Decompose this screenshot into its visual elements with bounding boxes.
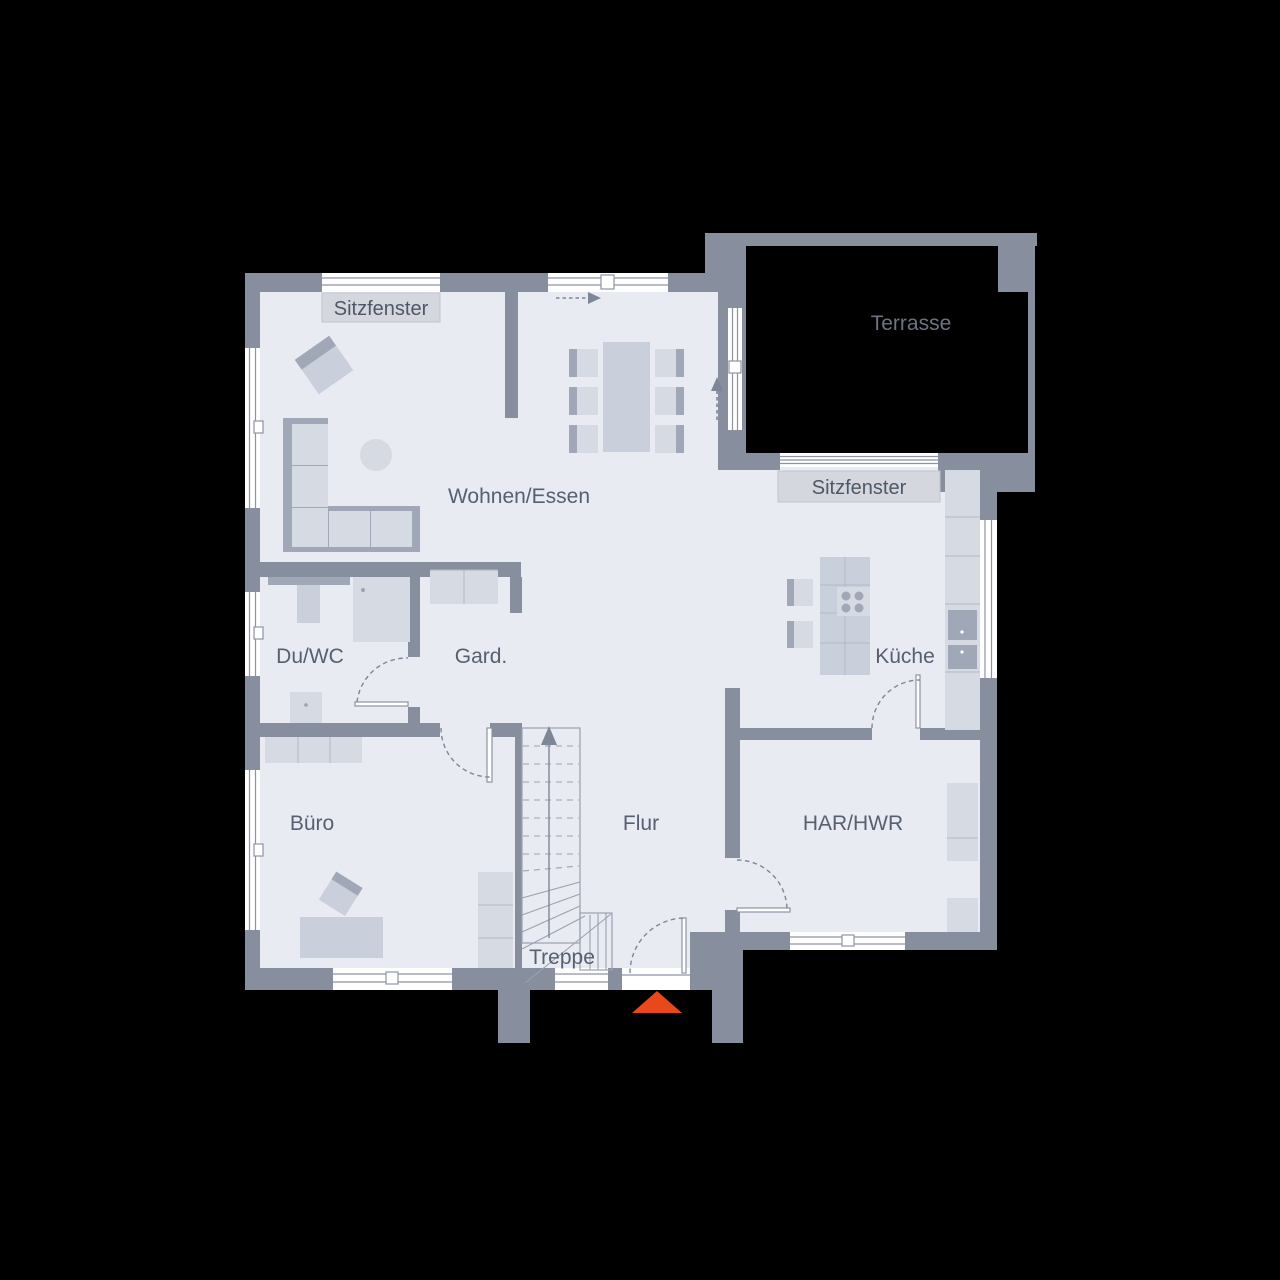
du-wc-label: Du/WC bbox=[276, 645, 344, 668]
dining-chair bbox=[569, 349, 598, 377]
window-handle bbox=[254, 627, 263, 639]
porch-right-block bbox=[690, 932, 743, 990]
har-hwr-label: HAR/HWR bbox=[803, 812, 903, 835]
dining-chair bbox=[569, 425, 598, 453]
treppe-label: Treppe bbox=[529, 946, 595, 969]
window-handle bbox=[729, 361, 741, 373]
window-handle bbox=[254, 844, 263, 856]
coffee-table bbox=[360, 439, 392, 471]
kitchen-island bbox=[820, 557, 870, 675]
har-cabinets bbox=[947, 783, 978, 932]
window-har-bottom bbox=[790, 932, 905, 950]
appliance bbox=[948, 645, 977, 669]
desk bbox=[300, 917, 383, 958]
terrace-topright-block bbox=[998, 240, 1035, 292]
window-buero-bottom bbox=[333, 968, 452, 990]
shower bbox=[353, 577, 410, 642]
stair-left-wall bbox=[515, 723, 522, 968]
porch-left-stub bbox=[498, 990, 530, 1043]
porch-right-stub bbox=[712, 990, 743, 1043]
dining-table bbox=[603, 342, 650, 452]
sitzfenster-right-label: Sitzfenster bbox=[812, 477, 907, 499]
terrasse-surface bbox=[746, 246, 1028, 453]
cooktop bbox=[837, 587, 870, 616]
window-top-sliding bbox=[548, 273, 668, 292]
window-treppe-bottom bbox=[555, 968, 608, 990]
wohnen-essen-label: Wohnen/Essen bbox=[448, 485, 590, 508]
dining-chair bbox=[655, 387, 684, 415]
window-handle bbox=[386, 972, 398, 984]
kueche-label: Küche bbox=[875, 645, 935, 668]
flur-har-wall bbox=[725, 688, 740, 858]
buero-cabinets bbox=[265, 737, 362, 763]
gard-right-stub bbox=[510, 577, 522, 613]
entrance-marker-icon bbox=[632, 991, 682, 1013]
terrace-right-wall bbox=[1028, 292, 1035, 453]
sitzfenster-top-label: Sitzfenster bbox=[334, 298, 429, 320]
buero-top-wall bbox=[245, 723, 440, 737]
kitchen-counter bbox=[945, 470, 980, 730]
gard-label: Gard. bbox=[455, 645, 508, 668]
buero-shelves bbox=[478, 872, 513, 968]
dining-chair bbox=[655, 425, 684, 453]
buero-label: Büro bbox=[290, 812, 334, 835]
terrace-top-wall bbox=[705, 233, 1037, 246]
window-handle bbox=[842, 935, 854, 946]
window-handle bbox=[254, 421, 263, 433]
dining-chair bbox=[569, 387, 598, 415]
terrasse-label: Terrasse bbox=[871, 312, 952, 335]
floor-plan-canvas: Sitzfenster Terrasse Wohnen/Essen Sitzfe… bbox=[0, 0, 1280, 1280]
flur-har-wall-lower bbox=[725, 910, 740, 937]
bar-stool bbox=[787, 621, 813, 648]
wardrobe bbox=[430, 570, 498, 604]
terrace-bottomleft-wall bbox=[746, 453, 780, 470]
terrace-door-window bbox=[728, 308, 742, 430]
window-handle bbox=[601, 275, 614, 289]
kueche-wall-left bbox=[740, 728, 872, 740]
dining-set bbox=[569, 342, 684, 453]
window-sitzfenster-top bbox=[322, 273, 440, 292]
bar-stool bbox=[787, 579, 813, 606]
entrance-door-opening bbox=[622, 968, 690, 990]
oven bbox=[948, 610, 977, 640]
washbasin bbox=[290, 692, 322, 723]
toilet bbox=[297, 585, 320, 623]
window-sitzfenster-terrace bbox=[780, 453, 938, 467]
window-kueche-right bbox=[980, 520, 997, 678]
flur-label: Flur bbox=[623, 812, 659, 835]
dining-chair bbox=[655, 349, 684, 377]
floor-plan-drawing: Sitzfenster Terrasse Wohnen/Essen Sitzfe… bbox=[0, 0, 1280, 1280]
wohnen-top-stub bbox=[505, 292, 518, 418]
